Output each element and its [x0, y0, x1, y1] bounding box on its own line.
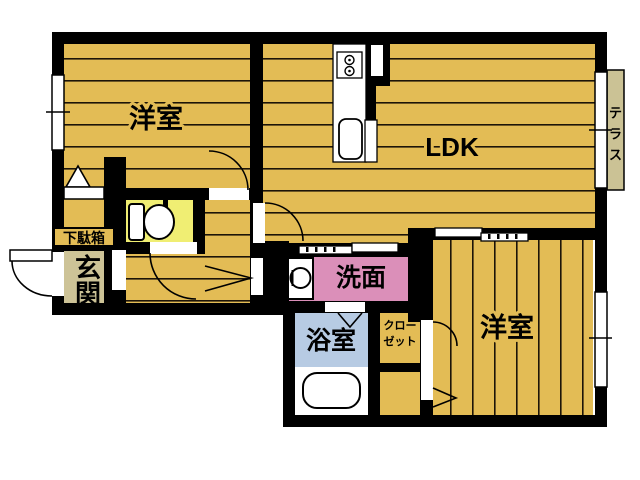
- entrance-door-gap: [52, 252, 64, 296]
- svg-text:関: 関: [75, 279, 101, 309]
- floor-plan: 洋室 LDK 洋室 洗面 浴室 玄 関 下駄箱 クロー ゼット テ ラ ス: [0, 0, 640, 480]
- svg-text:ゼット: ゼット: [384, 334, 417, 348]
- bathtub-icon: [303, 373, 360, 408]
- bathroom-door-gap: [325, 302, 365, 312]
- label-entrance: 玄 関: [75, 253, 101, 309]
- washroom-door-gap: [251, 258, 263, 295]
- hallway-floor-horizontal: [126, 254, 205, 303]
- washing-machine-icon: [288, 258, 313, 299]
- svg-text:ス: ス: [609, 148, 622, 163]
- shoebox-area: [64, 199, 104, 230]
- room-ldk-floor-lower: [263, 228, 408, 243]
- hallway-floor-vertical: [205, 200, 250, 303]
- closet-lower-floor: [380, 372, 420, 415]
- svg-text:ラ: ラ: [609, 127, 622, 142]
- entrance-door-leaf: [10, 250, 52, 261]
- entrance-door-arc: [12, 261, 52, 296]
- label-bedroom-top-left: 洋室: [129, 103, 183, 134]
- label-bedroom-bottom-right: 洋室: [480, 312, 534, 343]
- window-bedroom-br: [595, 292, 607, 387]
- label-ldk: LDK: [425, 132, 479, 162]
- toilet-icon: [129, 204, 174, 240]
- entrance-step-gap: [112, 250, 126, 290]
- label-shoebox: 下駄箱: [63, 230, 105, 246]
- bedroom-tl-door-gap: [209, 188, 249, 200]
- label-terrace: テ ラ ス: [609, 106, 622, 163]
- bedroom-br-door-gap: [421, 320, 433, 400]
- svg-text:テ: テ: [609, 106, 622, 121]
- kitchen-wall-slot: [371, 45, 383, 76]
- toilet-tank: [129, 204, 144, 240]
- ldk-door-gap: [253, 203, 265, 243]
- shoebox-counter: [64, 187, 104, 199]
- sink-icon: [339, 119, 362, 159]
- floor-plan-page: 洋室 LDK 洋室 洗面 浴室 玄 関 下駄箱 クロー ゼット テ ラ ス: [0, 0, 640, 480]
- toilet-door-gap: [150, 242, 197, 254]
- toilet-bowl: [144, 205, 174, 239]
- label-washroom: 洗面: [336, 264, 386, 292]
- svg-text:クロー: クロー: [384, 319, 417, 332]
- label-bathroom: 浴室: [306, 326, 356, 355]
